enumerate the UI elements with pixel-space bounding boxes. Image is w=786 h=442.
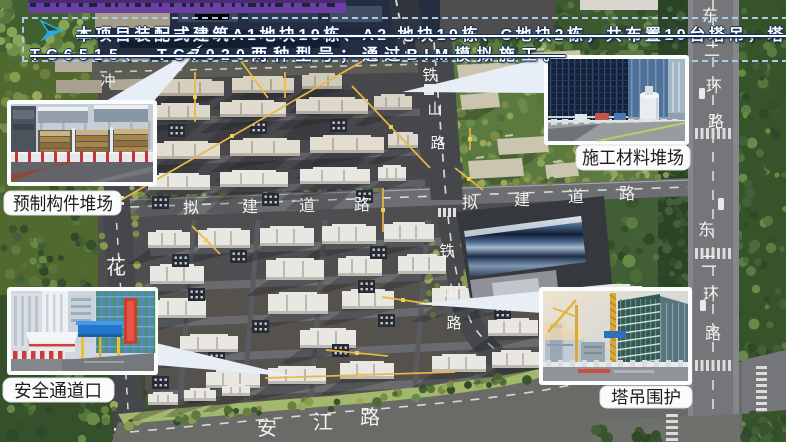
svg-text:施工材料堆场: 施工材料堆场 [582, 148, 684, 168]
svg-text:安全通道口: 安全通道口 [14, 381, 102, 401]
svg-text:预制构件堆场: 预制构件堆场 [13, 194, 113, 214]
svg-text:塔吊围护: 塔吊围护 [611, 388, 681, 407]
